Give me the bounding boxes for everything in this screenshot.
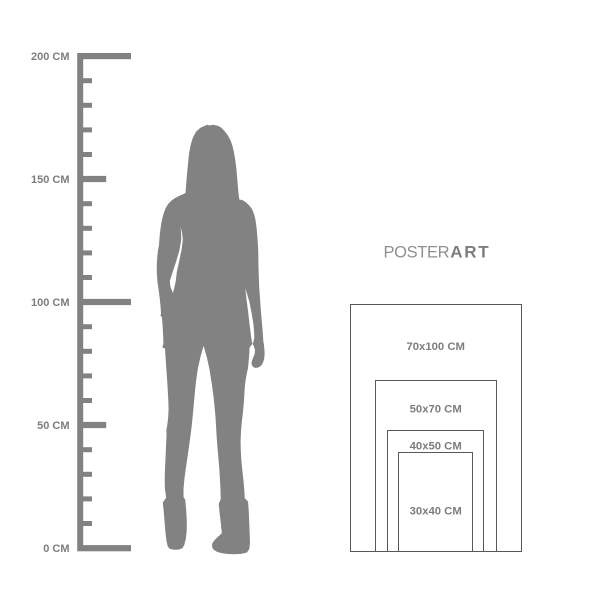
svg-text:50x70 CM: 50x70 CM: [410, 404, 462, 416]
svg-text:200 CM: 200 CM: [31, 51, 70, 63]
svg-text:40x50 CM: 40x50 CM: [410, 441, 462, 453]
svg-text:ART: ART: [450, 243, 490, 262]
svg-text:150 CM: 150 CM: [31, 174, 70, 186]
svg-text:50 CM: 50 CM: [37, 420, 69, 432]
svg-text:POSTER: POSTER: [384, 244, 450, 262]
svg-text:30x40 CM: 30x40 CM: [410, 506, 462, 518]
svg-text:70x100 CM: 70x100 CM: [406, 341, 464, 353]
svg-text:100 CM: 100 CM: [31, 297, 70, 309]
svg-text:0 CM: 0 CM: [43, 543, 69, 555]
